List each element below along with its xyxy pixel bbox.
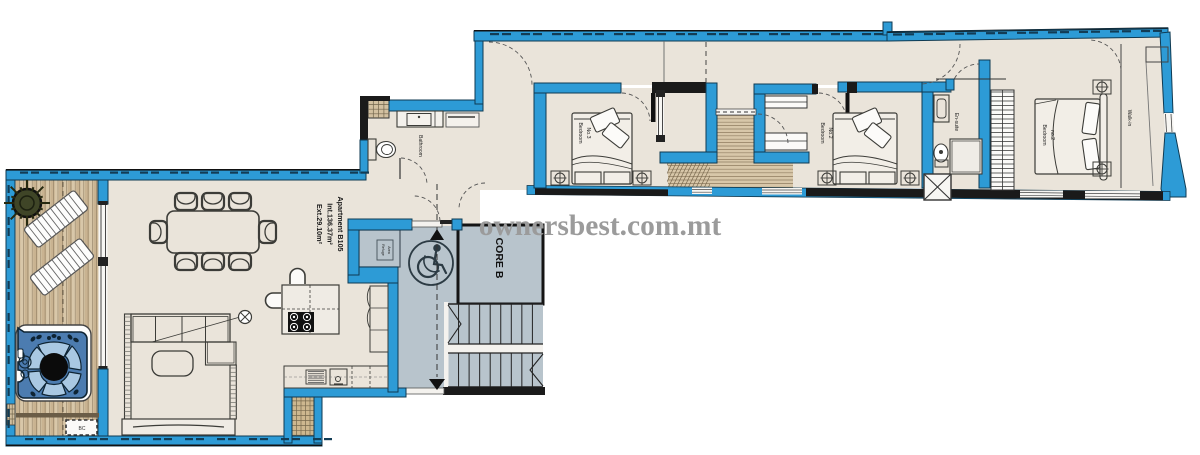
svg-text:No.2: No.2 (827, 128, 833, 139)
svg-text:Walk-in: Walk-in (1126, 110, 1132, 127)
svg-text:BC: BC (79, 426, 86, 432)
svg-text:ownersbest.com.mt: ownersbest.com.mt (479, 210, 722, 242)
svg-text:Apartment B105: Apartment B105 (336, 196, 345, 251)
svg-text:Bedroom: Bedroom (1041, 124, 1047, 145)
svg-text:Refuge: Refuge (381, 244, 385, 256)
svg-text:CORE B: CORE B (493, 238, 505, 279)
svg-text:Int.136.37m²: Int.136.37m² (326, 203, 335, 245)
svg-text:Bedroom: Bedroom (577, 122, 583, 143)
svg-text:En-suite: En-suite (953, 113, 959, 132)
svg-text:Area: Area (387, 246, 391, 254)
svg-text:no.2: no.2 (1049, 130, 1055, 140)
svg-text:Ext.29.10m²: Ext.29.10m² (315, 204, 324, 245)
svg-text:Bathroom: Bathroom (417, 135, 423, 157)
svg-text:Bedroom: Bedroom (819, 122, 825, 143)
svg-text:No.3: No.3 (585, 128, 591, 139)
